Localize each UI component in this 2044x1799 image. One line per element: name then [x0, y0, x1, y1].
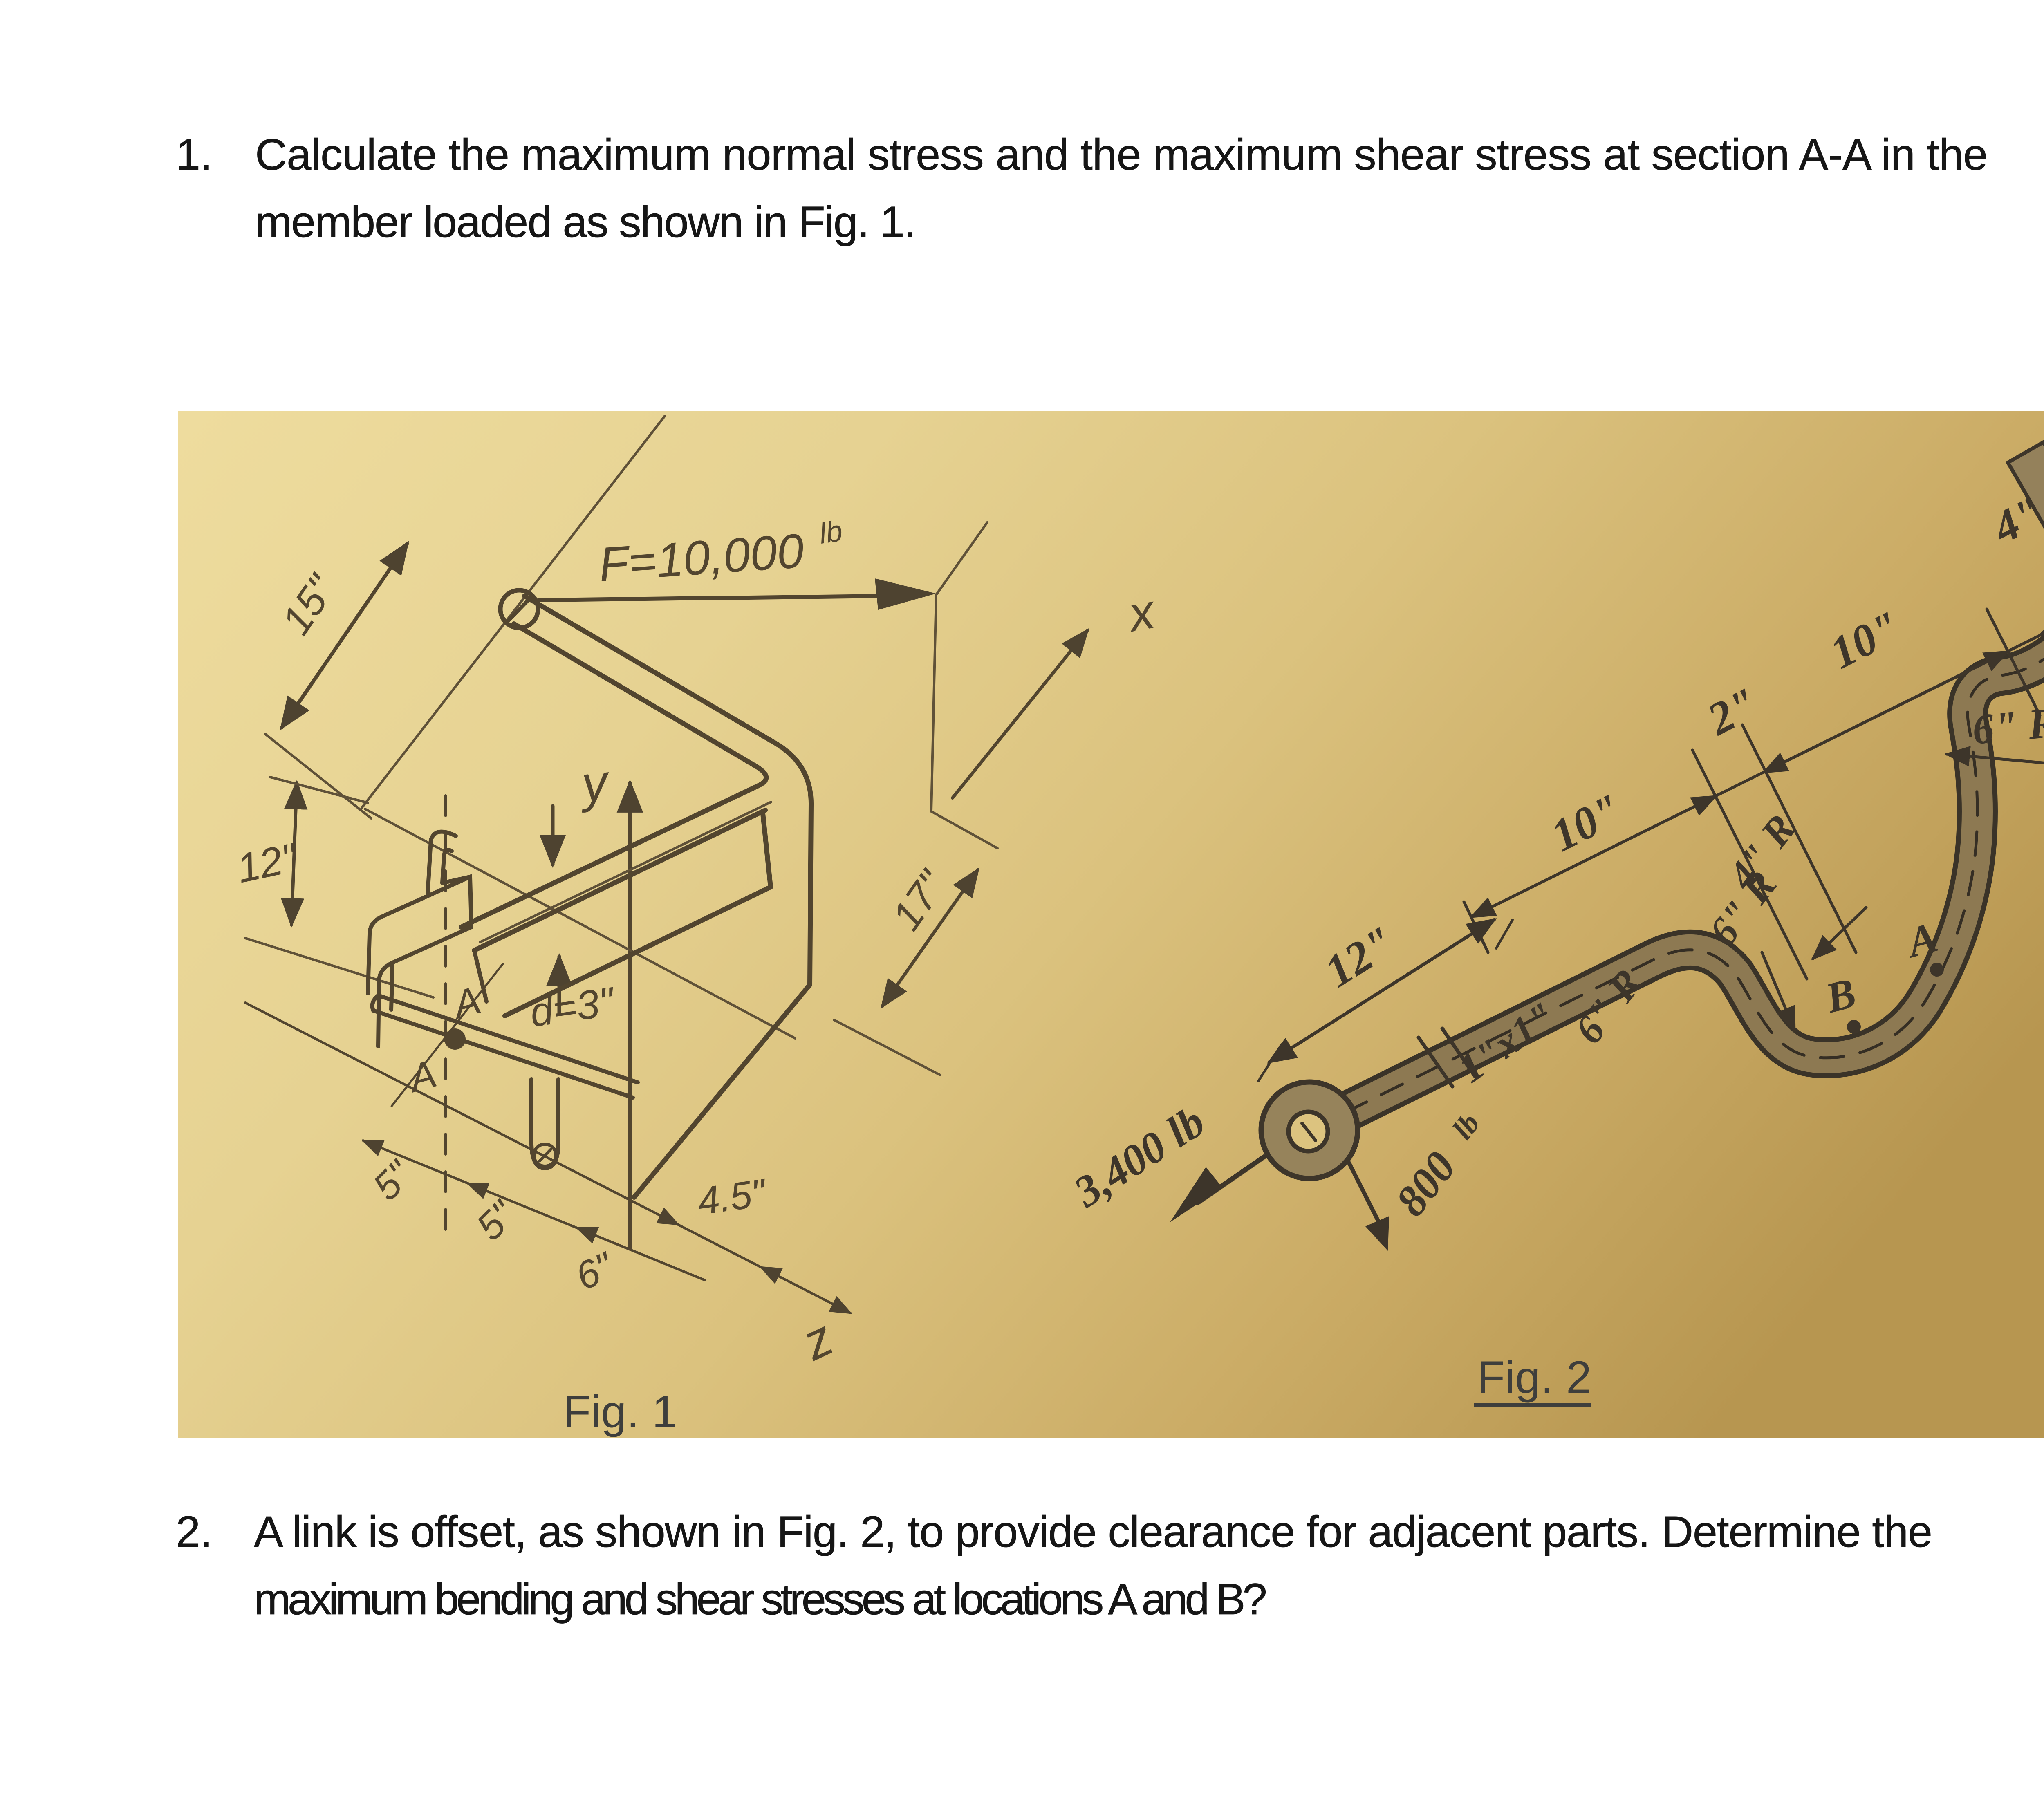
svg-text:Fig. 1: Fig. 1: [563, 1386, 677, 1437]
svg-text:Fig. 2: Fig. 2: [1477, 1352, 1591, 1403]
svg-text:lb: lb: [817, 515, 845, 550]
svg-text:6" R: 6" R: [1970, 698, 2044, 753]
